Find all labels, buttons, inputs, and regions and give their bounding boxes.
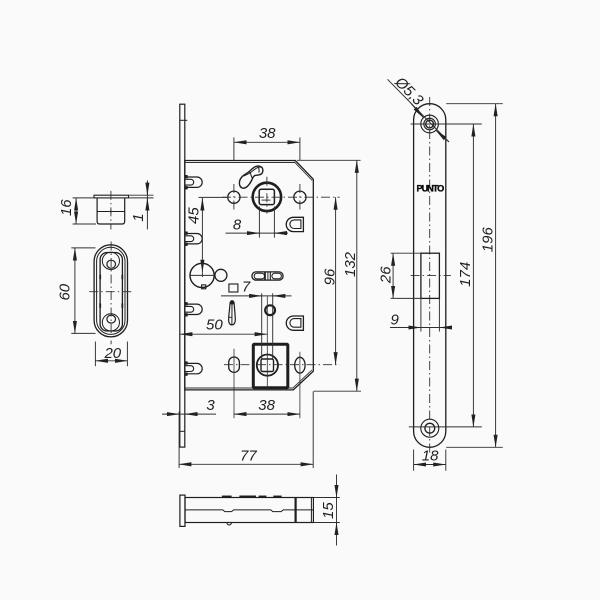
svg-text:1: 1: [130, 213, 147, 221]
svg-text:38: 38: [259, 125, 276, 142]
svg-text:7: 7: [242, 279, 251, 296]
svg-text:45: 45: [186, 207, 203, 224]
svg-text:8: 8: [233, 216, 242, 233]
svg-text:96: 96: [321, 268, 338, 285]
svg-text:20: 20: [103, 345, 121, 362]
svg-text:38: 38: [258, 397, 275, 414]
svg-text:174: 174: [457, 262, 474, 287]
svg-text:196: 196: [479, 227, 496, 253]
svg-text:PUNTO: PUNTO: [417, 184, 445, 194]
svg-text:18: 18: [422, 448, 439, 465]
svg-text:15: 15: [320, 502, 337, 519]
svg-text:9: 9: [391, 312, 400, 329]
svg-text:60: 60: [57, 283, 74, 300]
svg-text:132: 132: [342, 251, 359, 277]
svg-text:Ø5,3: Ø5,3: [391, 73, 427, 109]
svg-text:3: 3: [206, 397, 215, 414]
svg-text:16: 16: [58, 199, 75, 216]
svg-text:50: 50: [206, 317, 223, 334]
svg-text:77: 77: [240, 447, 257, 464]
svg-text:26: 26: [378, 266, 395, 284]
